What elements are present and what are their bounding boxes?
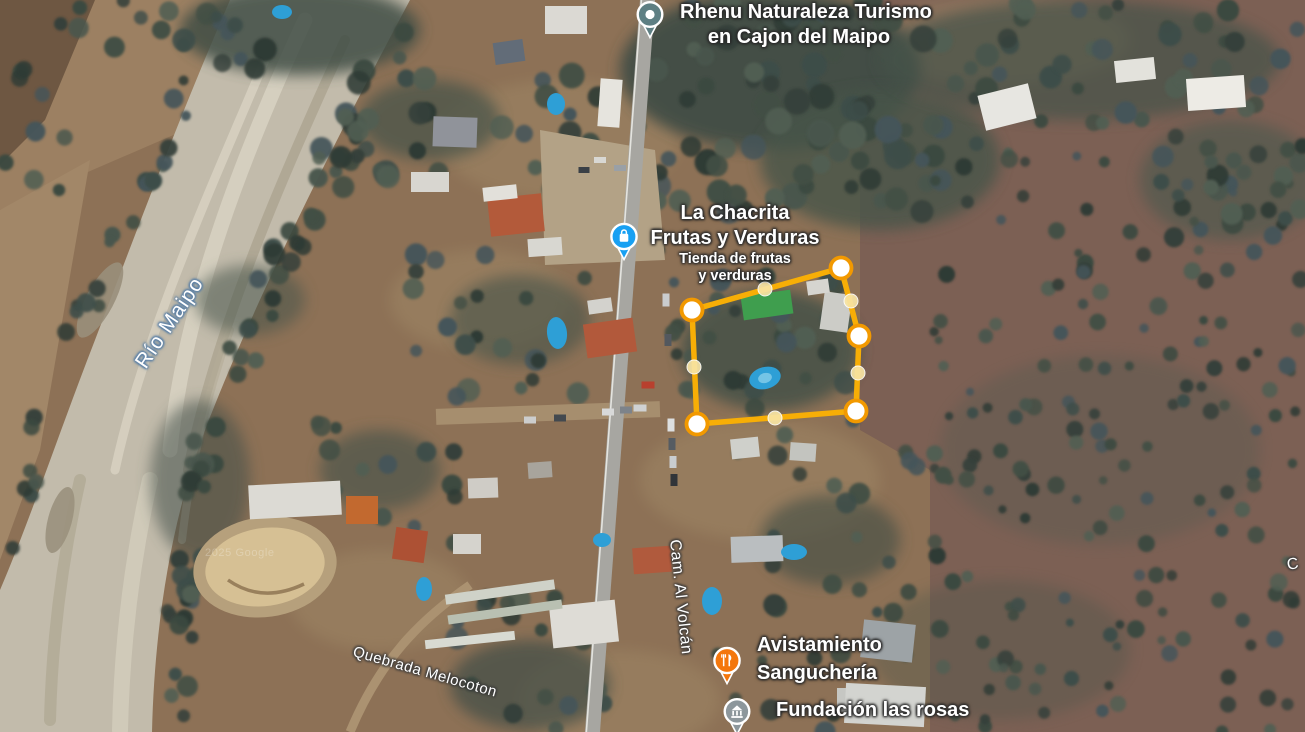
polygon-midpoint-handle[interactable] xyxy=(844,294,858,308)
road-label-partial-edge: C xyxy=(1286,555,1300,575)
polygon-vertex-handle[interactable] xyxy=(687,414,708,435)
polygon-midpoint-handle[interactable] xyxy=(687,360,701,374)
pin-dot-icon xyxy=(645,10,654,19)
place-label-la-chacrita[interactable]: La Chacrita Frutas y Verduras Tienda de … xyxy=(615,201,855,285)
place-label-line: Frutas y Verduras xyxy=(615,226,855,251)
polygon-vertex-handle[interactable] xyxy=(846,401,867,422)
place-label-line: en Cajon del Maipo xyxy=(680,25,918,50)
place-label-line: Rhenu Naturaleza Turismo xyxy=(680,0,918,25)
restaurant-pin-icon[interactable] xyxy=(712,646,742,686)
property-boundary-overlay[interactable] xyxy=(0,0,1305,732)
boundary-polygon[interactable] xyxy=(692,268,859,424)
place-label-line: Avistamiento xyxy=(757,631,882,659)
rhenu-place-pin-icon[interactable] xyxy=(635,0,665,40)
map-attribution: 2025 Google xyxy=(205,547,275,559)
place-sublabel-line: Tienda de frutas xyxy=(615,251,855,268)
pin-circle xyxy=(714,648,739,673)
place-label-line: Sanguchería xyxy=(757,659,882,687)
polygon-midpoint-handle[interactable] xyxy=(768,411,782,425)
polygon-vertex-handle[interactable] xyxy=(849,326,870,347)
polygon-vertex-handle[interactable] xyxy=(682,300,703,321)
polygon-midpoint-handle[interactable] xyxy=(851,366,865,380)
place-label-rhenu[interactable]: Rhenu Naturaleza Turismo en Cajon del Ma… xyxy=(680,0,918,50)
institution-pin-icon[interactable] xyxy=(722,697,752,732)
place-label-line: Fundación las rosas xyxy=(776,698,969,723)
place-sublabel-line: y verduras xyxy=(615,268,855,285)
place-label-avistamiento[interactable]: Avistamiento Sanguchería xyxy=(757,631,882,687)
satellite-map[interactable]: 2025 Google Rhenu Naturalez xyxy=(0,0,1305,732)
place-label-fundacion[interactable]: Fundación las rosas xyxy=(776,698,969,723)
place-label-line: La Chacrita xyxy=(615,201,855,226)
